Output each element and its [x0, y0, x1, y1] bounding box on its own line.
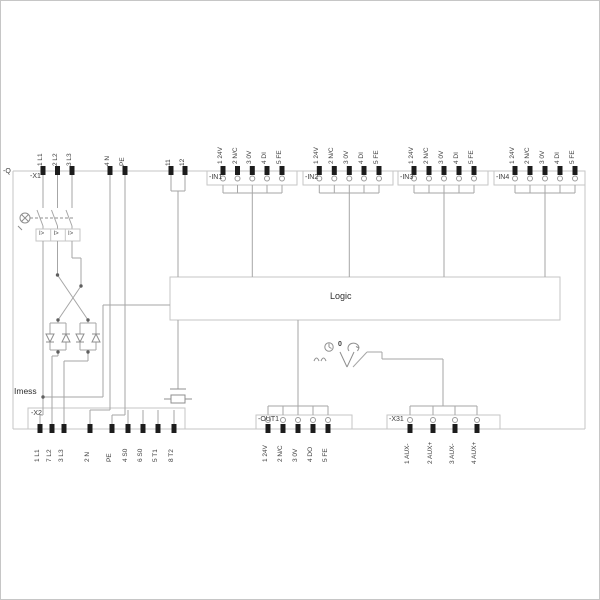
in2-terminal-label: 4 DI [357, 130, 367, 164]
x2-terminal-label: 2 N [83, 428, 93, 462]
in3-terminal-label: 1 24V [407, 130, 417, 164]
out1-terminal-label: 5 FE [321, 428, 331, 462]
in2-terminal-label: 5 FE [372, 130, 382, 164]
image-border [1, 1, 600, 600]
x1-terminal-label: 2 L2 [51, 132, 61, 166]
in2-label: -IN2 [305, 174, 318, 182]
x2-terminal-label: 3 L3 [57, 428, 67, 462]
x1-terminal-label: 3 L3 [65, 132, 75, 166]
x2-label: -X2 [31, 410, 42, 418]
in3-terminal-label: 4 DI [452, 130, 462, 164]
x31-terminal-label: 1 AUX- [403, 430, 413, 464]
x2-terminal-label: 4 S0 [121, 428, 131, 462]
mode-selector-switch [314, 343, 359, 367]
x2-terminal-label: 8 T2 [167, 428, 177, 462]
trip-label: I> [39, 231, 44, 238]
trip-label: I> [54, 231, 59, 238]
trip-label: I> [68, 231, 73, 238]
in3-terminal-label: 3 0V [437, 130, 447, 164]
x31-terminal-label: 3 AUX- [448, 430, 458, 464]
x1-terminal-label: 11 [164, 132, 174, 166]
signal-buses [171, 171, 575, 277]
in1-label: -IN1 [209, 174, 222, 182]
earth-symbol [164, 320, 192, 403]
in1-terminal-label: 5 FE [275, 130, 285, 164]
in4-terminal-label: 5 FE [568, 130, 578, 164]
in4-terminal-label: 2 N/C [523, 130, 533, 164]
connector-sockets [221, 176, 578, 423]
in2-terminal-label: 3 0V [342, 130, 352, 164]
x1-terminal-label: 1 L1 [36, 132, 46, 166]
out1-terminal-label: 3 0V [291, 428, 301, 462]
x31-label: -X31 [389, 416, 404, 424]
reset-arrow-icon [348, 343, 359, 351]
in4-terminal-label: 3 0V [538, 130, 548, 164]
x1-terminal-label: 12 [178, 132, 188, 166]
out1-terminal-label: 1 24V [261, 428, 271, 462]
x31-terminal-label: 2 AUX+ [426, 430, 436, 464]
x31-terminal-label: 4 AUX+ [470, 430, 480, 464]
schematic-linework [0, 0, 600, 600]
in2-terminal-label: 1 24V [312, 130, 322, 164]
in4-label: -IN4 [496, 174, 509, 182]
in4-terminal-label: 1 24V [508, 130, 518, 164]
in1-terminal-label: 2 N/C [231, 130, 241, 164]
in3-terminal-label: 2 N/C [422, 130, 432, 164]
in1-terminal-label: 3 0V [245, 130, 255, 164]
x2-terminal-label: PE [105, 428, 115, 462]
in4-terminal-label: 4 DI [553, 130, 563, 164]
selector-zero-label: 0 [338, 341, 342, 349]
x2-terminal-label: 5 T1 [151, 428, 161, 462]
imess-label: Imess [14, 387, 37, 395]
in3-terminal-label: 5 FE [467, 130, 477, 164]
out1-terminal-label: 4 DO [306, 428, 316, 462]
in3-label: -IN3 [400, 174, 413, 182]
x2-terminal-label: 1 L1 [33, 428, 43, 462]
in1-terminal-label: 4 DI [260, 130, 270, 164]
logic-label: Logic [330, 292, 352, 300]
in1-terminal-label: 1 24V [216, 130, 226, 164]
neutral-pe-imess-wiring [43, 171, 174, 424]
device-designation: -Q [3, 168, 11, 176]
out1-terminal-label: 2 N/C [276, 428, 286, 462]
x1-terminal-label: 4 N [103, 132, 113, 166]
device-outline [13, 171, 585, 429]
spring-return-marks [314, 358, 326, 361]
selector-pointer [340, 352, 354, 367]
breaker-contacts [37, 210, 72, 229]
x2-terminal-label: 7 L2 [45, 428, 55, 462]
x1-terminal-label: PE [118, 132, 128, 166]
x1-label: -X1 [30, 173, 41, 181]
wiring-diagram: -Q -X1 -IN1 -IN2 -IN3 -IN4 -X2 -OUT1 -X3… [0, 0, 600, 600]
x2-terminal-label: 6 S0 [136, 428, 146, 462]
in2-terminal-label: 2 N/C [327, 130, 337, 164]
logic-block-box [170, 277, 560, 320]
output-buses [268, 320, 477, 415]
out1-label: -OUT1 [258, 416, 279, 424]
